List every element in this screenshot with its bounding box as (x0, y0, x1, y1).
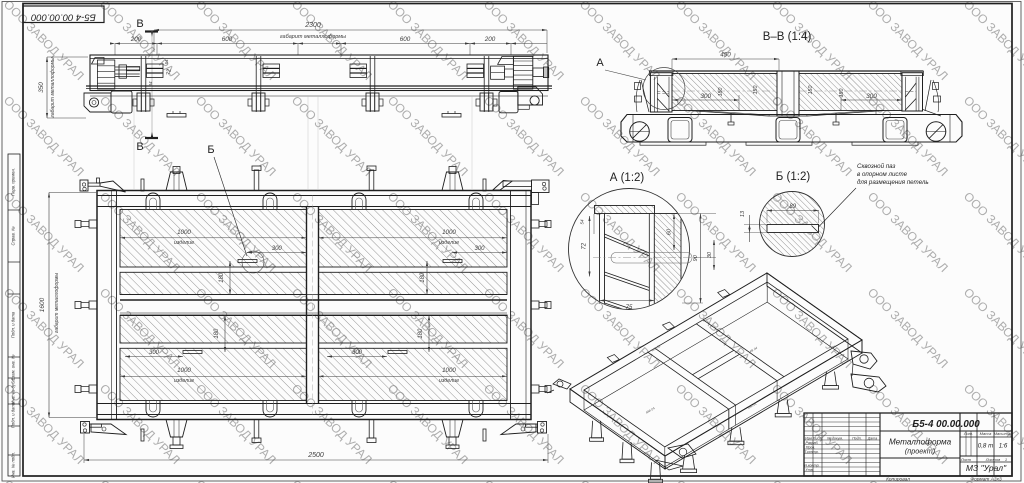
svg-text:150: 150 (808, 86, 814, 95)
svg-text:300: 300 (474, 246, 485, 252)
svg-text:350: 350 (38, 82, 45, 93)
svg-text:90: 90 (693, 254, 699, 261)
svg-text:600: 600 (400, 36, 411, 43)
svg-text:(проект): (проект) (905, 447, 935, 456)
svg-text:180: 180 (418, 328, 424, 339)
svg-text:В: В (136, 18, 143, 30)
svg-text:В–В (1:4): В–В (1:4) (763, 31, 812, 43)
svg-text:Копировал: Копировал (886, 477, 910, 483)
svg-text:в опорном листе: в опорном листе (857, 171, 908, 178)
svg-text:72: 72 (167, 69, 173, 75)
svg-text:1000: 1000 (442, 229, 456, 236)
svg-text:Инв. № подл.: Инв. № подл. (11, 452, 16, 478)
svg-text:Пров.: Пров. (806, 445, 815, 449)
svg-text:89: 89 (789, 204, 796, 210)
svg-text:изделие: изделие (439, 378, 459, 384)
svg-text:Инв. № дубл.: Инв. № дубл. (11, 378, 16, 404)
svg-text:Подп.: Подп. (852, 436, 862, 440)
svg-text:Подп. и дата: Подп. и дата (11, 311, 16, 338)
svg-text:180: 180 (420, 272, 426, 283)
svg-text:Подп. и дата: Подп. и дата (11, 401, 16, 428)
svg-text:180: 180 (839, 89, 845, 98)
svg-text:габарит металлоформы: габарит металлоформы (50, 57, 56, 117)
svg-text:Лист: Лист (812, 436, 822, 440)
svg-text:Металлоформа: Металлоформа (889, 438, 952, 447)
svg-text:Сквозной паз: Сквозной паз (857, 163, 895, 170)
svg-text:1600: 1600 (39, 297, 46, 312)
svg-text:Лит.: Лит. (963, 431, 973, 436)
svg-text:В: В (136, 141, 143, 153)
svg-text:30: 30 (707, 251, 713, 258)
svg-text:200: 200 (130, 36, 142, 43)
svg-text:1000: 1000 (442, 367, 456, 374)
svg-text:300: 300 (866, 93, 877, 100)
svg-text:300: 300 (272, 246, 283, 252)
svg-text:Б5-4 00.00.000: Б5-4 00.00.000 (30, 12, 96, 23)
svg-text:13: 13 (740, 210, 746, 217)
svg-text:Н.контр.: Н.контр. (804, 463, 819, 467)
svg-text:Перв. примен.: Перв. примен. (11, 168, 16, 196)
svg-text:150: 150 (753, 86, 759, 95)
svg-text:600: 600 (222, 36, 233, 43)
svg-text:изделие: изделие (439, 240, 459, 246)
svg-text:1:6: 1:6 (999, 443, 1008, 450)
svg-text:300: 300 (700, 93, 711, 100)
svg-text:Масштаб: Масштаб (994, 431, 1013, 436)
svg-text:Листов: Листов (985, 457, 1001, 462)
svg-text:изделие: изделие (174, 378, 194, 384)
svg-text:Справ. №: Справ. № (11, 226, 16, 245)
svg-text:Дата: Дата (867, 436, 877, 440)
svg-text:МЗ "Урал": МЗ "Урал" (966, 463, 1007, 473)
svg-text:300: 300 (352, 350, 363, 356)
svg-text:А (1:2): А (1:2) (610, 172, 645, 184)
svg-text:0,8 т: 0,8 т (978, 443, 993, 450)
svg-text:60: 60 (667, 228, 673, 235)
svg-text:84: 84 (148, 81, 153, 87)
svg-text:2500: 2500 (307, 452, 324, 459)
svg-text:72: 72 (582, 242, 588, 249)
svg-text:№ докум.: № докум. (827, 436, 843, 440)
svg-text:для размещения петель: для размещения петель (857, 179, 929, 186)
svg-text:А: А (596, 57, 604, 69)
svg-text:Формат А3х3: Формат А3х3 (970, 477, 1002, 483)
svg-text:180: 180 (718, 88, 724, 97)
svg-text:Утв.: Утв. (805, 468, 813, 472)
svg-text:1000: 1000 (177, 367, 191, 374)
svg-text:Т.контр.: Т.контр. (804, 450, 819, 454)
svg-text:Б (1:2): Б (1:2) (776, 171, 811, 183)
svg-text:54: 54 (580, 219, 585, 225)
svg-text:Б5-4 00.00.000: Б5-4 00.00.000 (912, 419, 980, 430)
svg-text:габарит металлоформы: габарит металлоформы (54, 273, 60, 333)
svg-text:180: 180 (219, 272, 225, 283)
svg-text:Масса: Масса (980, 431, 993, 436)
svg-text:Взам. инв. №: Взам. инв. № (11, 354, 16, 380)
svg-text:1000: 1000 (177, 229, 191, 236)
svg-text:54: 54 (164, 59, 169, 65)
svg-text:180: 180 (214, 328, 220, 339)
svg-text:Лист: Лист (960, 457, 972, 462)
svg-text:300: 300 (149, 350, 160, 356)
svg-text:Разраб.: Разраб. (805, 441, 818, 445)
svg-text:Изм: Изм (805, 436, 812, 440)
svg-text:габарит металлоформы: габарит металлоформы (280, 34, 346, 40)
svg-text:Б: Б (207, 144, 214, 156)
svg-text:1: 1 (1005, 457, 1007, 462)
svg-text:450: 450 (720, 52, 731, 59)
svg-text:изделие: изделие (174, 240, 194, 246)
svg-text:200: 200 (484, 36, 496, 43)
svg-text:75: 75 (626, 305, 633, 311)
svg-text:2300: 2300 (304, 22, 321, 29)
